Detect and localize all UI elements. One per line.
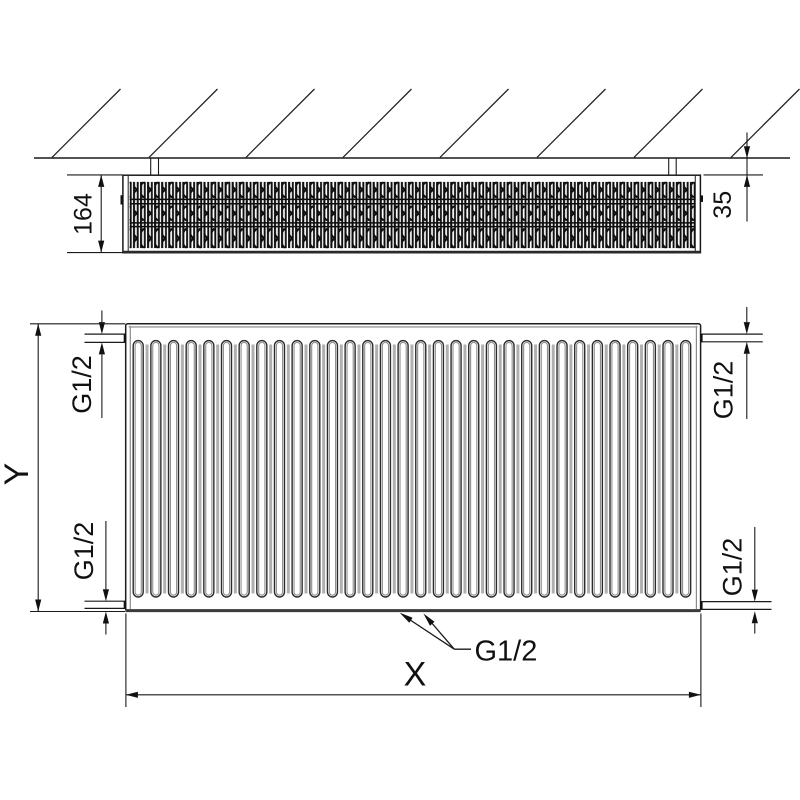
svg-text:G1/2: G1/2: [718, 538, 748, 597]
svg-text:G1/2: G1/2: [475, 636, 538, 668]
svg-text:Y: Y: [0, 463, 36, 486]
svg-text:G1/2: G1/2: [709, 361, 739, 420]
svg-text:G1/2: G1/2: [69, 522, 99, 581]
svg-text:X: X: [404, 656, 427, 694]
svg-text:35: 35: [709, 191, 737, 219]
svg-text:164: 164: [69, 193, 97, 235]
svg-text:G1/2: G1/2: [67, 355, 97, 414]
